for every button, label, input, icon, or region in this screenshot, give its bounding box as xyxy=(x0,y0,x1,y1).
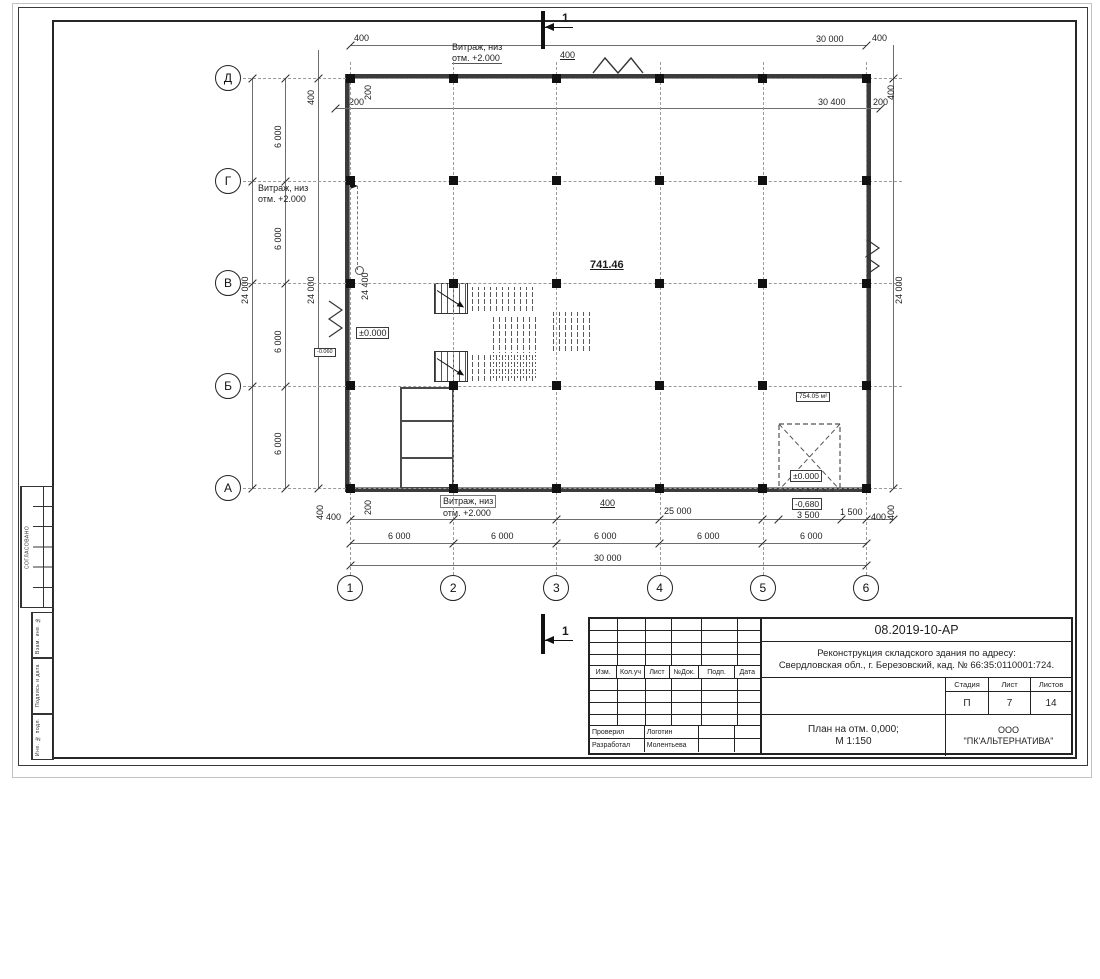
room-area-741: 741.46 xyxy=(590,260,624,270)
stage-label: Стадия xyxy=(946,678,989,691)
dim-bottom-left-400: 400 xyxy=(326,512,341,522)
checked-name: Логотин xyxy=(645,726,700,738)
developed-name: Молентьева xyxy=(645,739,700,752)
doc-number: 08.2019-10-АР xyxy=(762,619,1071,642)
column-square xyxy=(655,381,664,390)
grid-line-vertical xyxy=(660,62,661,575)
column-square xyxy=(758,176,767,185)
developed-sign xyxy=(699,739,734,752)
company-line2: "ПК'АЛЬТЕРНАТИВА" xyxy=(964,736,1054,747)
checked-row: Проверил Логотин xyxy=(590,726,760,739)
column-square xyxy=(346,484,355,493)
sheets-label: Листов xyxy=(1031,678,1071,691)
vitrazh-note-bottom: Витраж, низ отм. +2.000 xyxy=(440,495,496,518)
axis-bubble-col: 4 xyxy=(647,575,673,601)
section-arrow-icon xyxy=(545,23,554,31)
column-square xyxy=(758,74,767,83)
stair-flight-lower xyxy=(434,351,468,382)
vitrazh-line1: Витраж, низ xyxy=(440,495,496,508)
hatch-zone-4 xyxy=(472,353,537,383)
col-dok: №Док. xyxy=(670,666,699,678)
axis-bubble-col: 2 xyxy=(440,575,466,601)
axis-bubble-row: В xyxy=(215,270,241,296)
title-block-right: 08.2019-10-АР Реконструкция складского з… xyxy=(760,617,1073,755)
dim-top-400-right: 400 xyxy=(872,33,887,43)
developed-label: Разработал xyxy=(590,739,645,752)
dim-right-400-bottom: 400 xyxy=(871,512,886,522)
grid-line-horizontal xyxy=(243,488,902,489)
dim-left-6000-3: 6 000 xyxy=(273,317,283,353)
column-square xyxy=(552,74,561,83)
dim-bottom-left-400-v: 400 xyxy=(315,498,325,520)
stage-row-blank xyxy=(762,678,946,714)
dim-top-400-left: 400 xyxy=(354,33,369,43)
developed-date xyxy=(735,739,760,752)
column-square xyxy=(758,484,767,493)
column-square xyxy=(862,176,871,185)
project-line1: Реконструкция складского здания по адрес… xyxy=(817,648,1015,660)
dim-bottom-200-v: 200 xyxy=(363,495,373,515)
elev-minus060: -0.060 xyxy=(314,348,336,357)
grid-line-horizontal xyxy=(243,283,902,284)
drawing-title-row: План на отм. 0,000; М 1:150 ООО "ПК'АЛЬТ… xyxy=(762,715,1071,756)
vitrazh-line1: Витраж, низ xyxy=(258,183,308,194)
hatch-zone-3 xyxy=(553,312,593,353)
dim-line-bottom-6000 xyxy=(350,543,866,544)
col-podp: Подп. xyxy=(699,666,734,678)
dim-line-left-inner xyxy=(318,50,319,488)
title-block-left: Изм. Кол.уч Лист №Док. Подп. Дата Провер… xyxy=(588,617,762,755)
dim-bottom-6000-4: 6 000 xyxy=(697,531,720,541)
dim-left-6000-2: 6 000 xyxy=(273,214,283,250)
drawing-title-line1: План на отм. 0,000; xyxy=(808,724,899,736)
col-list: Лист xyxy=(645,666,670,678)
grid-line-vertical xyxy=(763,62,764,575)
dim-bottom-6000-1: 6 000 xyxy=(388,531,411,541)
dim-left-6000-1: 6 000 xyxy=(273,112,283,148)
title-block-blank-row xyxy=(590,703,760,715)
column-square xyxy=(449,74,458,83)
dim-top-200-left: 200 xyxy=(349,97,364,107)
company-line1: ООО xyxy=(998,725,1019,736)
column-square xyxy=(758,279,767,288)
dim-top-200-left-v: 200 xyxy=(363,80,373,100)
col-izm: Изм. xyxy=(590,666,617,678)
column-square xyxy=(655,279,664,288)
dim-line-top-30400 xyxy=(335,108,881,109)
axis-bubble-row: А xyxy=(215,475,241,501)
dim-right-200: 200 xyxy=(873,97,888,107)
project-line2: Свердловская обл., г. Березовский, кад. … xyxy=(779,660,1054,672)
title-block-blank-row xyxy=(590,643,760,655)
checked-label: Проверил xyxy=(590,726,645,738)
vitrazh-note-left: Витраж, низ отм. +2.000 xyxy=(258,183,308,204)
dim-3500: 3 500 xyxy=(797,510,820,520)
title-block-blank-row xyxy=(590,691,760,703)
vitrazh-line2: отм. +2.000 xyxy=(258,194,308,205)
hatch-zone-1 xyxy=(472,287,537,313)
axis-bubble-col: 3 xyxy=(543,575,569,601)
rack-shelf-line xyxy=(402,457,452,459)
dim-bottom-6000-5: 6 000 xyxy=(800,531,823,541)
column-square xyxy=(552,176,561,185)
vitrazh-note-top: Витраж, низ отм. +2.000 xyxy=(452,42,502,64)
title-block-blank-row xyxy=(590,619,760,631)
section-mark-top-bar xyxy=(541,11,545,49)
column-square xyxy=(346,74,355,83)
column-square xyxy=(655,74,664,83)
grid-line-vertical xyxy=(453,62,454,575)
column-square xyxy=(449,381,458,390)
grid-line-horizontal xyxy=(243,181,902,182)
column-square xyxy=(862,484,871,493)
axis-bubble-col: 1 xyxy=(337,575,363,601)
vitrazh-line2: отм. +2.000 xyxy=(440,508,496,519)
column-square xyxy=(862,74,871,83)
column-square xyxy=(862,279,871,288)
title-block-blank-row xyxy=(590,715,760,726)
floor-plan: 400 30 000 400 200 200 30 400 400 Витраж… xyxy=(0,0,1100,979)
elev-zero-main: ±0.000 xyxy=(356,327,389,339)
column-square xyxy=(552,381,561,390)
stage-table: Стадия Лист Листов П 7 14 xyxy=(946,678,1071,714)
column-square xyxy=(655,484,664,493)
column-square xyxy=(346,381,355,390)
wall-break-left xyxy=(327,300,345,340)
drawing-title: План на отм. 0,000; М 1:150 xyxy=(762,715,946,756)
company-name: ООО "ПК'АЛЬТЕРНАТИВА" xyxy=(946,715,1071,756)
dim-top-30400: 30 400 xyxy=(818,97,846,107)
dim-bottom-6000-3: 6 000 xyxy=(594,531,617,541)
column-square xyxy=(758,381,767,390)
column-square xyxy=(346,176,355,185)
column-square xyxy=(552,279,561,288)
section-arrow-icon xyxy=(545,636,554,644)
title-block-blank-row xyxy=(590,655,760,666)
rack-structure xyxy=(400,387,454,489)
checked-date xyxy=(735,726,760,738)
sheet-value: 7 xyxy=(989,692,1031,714)
col-data: Дата xyxy=(735,666,760,678)
room-area-754: 754.05 м² xyxy=(796,392,830,402)
wall-feature-dashed xyxy=(357,186,358,270)
vitrazh-line1: Витраж, низ xyxy=(452,42,502,53)
column-square xyxy=(346,279,355,288)
grid-line-vertical xyxy=(556,62,557,575)
axis-bubble-col: 6 xyxy=(853,575,879,601)
stair-arrow-icon xyxy=(437,358,463,375)
dim-top-30000: 30 000 xyxy=(816,34,844,44)
grid-line-vertical xyxy=(866,62,867,575)
vitrazh-line2: отм. +2.000 xyxy=(452,53,502,65)
column-square xyxy=(655,176,664,185)
sheet-label: Лист xyxy=(989,678,1031,691)
project-name: Реконструкция складского здания по адрес… xyxy=(762,642,1071,678)
checked-sign xyxy=(699,726,734,738)
gate-zigzag-top xyxy=(592,54,644,74)
dim-bottom-6000-2: 6 000 xyxy=(491,531,514,541)
column-square xyxy=(552,484,561,493)
axis-bubble-row: Б xyxy=(215,373,241,399)
dim-line-bottom-30000 xyxy=(350,565,866,566)
axis-bubble-row: Г xyxy=(215,168,241,194)
developed-row: Разработал Молентьева xyxy=(590,739,760,752)
grid-line-horizontal xyxy=(243,386,902,387)
axis-bubble-col: 5 xyxy=(750,575,776,601)
stair-flight-upper xyxy=(434,283,468,314)
column-square xyxy=(449,484,458,493)
stair-arrow-icon xyxy=(437,290,463,307)
dim-left-400: 400 xyxy=(306,83,316,105)
stage-value: П xyxy=(946,692,989,714)
dim-bottom-400: 400 xyxy=(600,498,615,508)
dim-24400: 24 400 xyxy=(360,258,370,300)
section-label-top: 1 xyxy=(562,13,569,23)
section-mark-bottom-bar xyxy=(541,614,545,654)
rack-shelf-line xyxy=(402,420,452,422)
dim-gate-400: 400 xyxy=(560,50,575,60)
grid-line-vertical xyxy=(350,62,351,575)
sheets-value: 14 xyxy=(1031,692,1071,714)
column-square xyxy=(449,279,458,288)
col-koluch: Кол.уч xyxy=(617,666,644,678)
axis-bubble-row: Д xyxy=(215,65,241,91)
dim-bottom-30000: 30 000 xyxy=(594,553,622,563)
column-square xyxy=(449,176,458,185)
column-square xyxy=(862,381,871,390)
section-label-bottom: 1 xyxy=(562,626,569,636)
title-block-blank-row xyxy=(590,679,760,691)
elev-zero-ramp: ±0.000 xyxy=(790,470,822,482)
grid-line-horizontal xyxy=(243,78,902,79)
elev-minus680: -0,680 xyxy=(792,498,822,510)
title-block-header-row: Изм. Кол.уч Лист №Док. Подп. Дата xyxy=(590,666,760,679)
dim-left-6000-4: 6 000 xyxy=(273,419,283,455)
drawing-title-line2: М 1:150 xyxy=(835,736,871,748)
stage-row: Стадия Лист Листов П 7 14 xyxy=(762,678,1071,715)
dim-bottom-25000: 25 000 xyxy=(664,506,692,516)
title-block-blank-row xyxy=(590,631,760,643)
dim-line-top-30000 xyxy=(350,45,866,46)
